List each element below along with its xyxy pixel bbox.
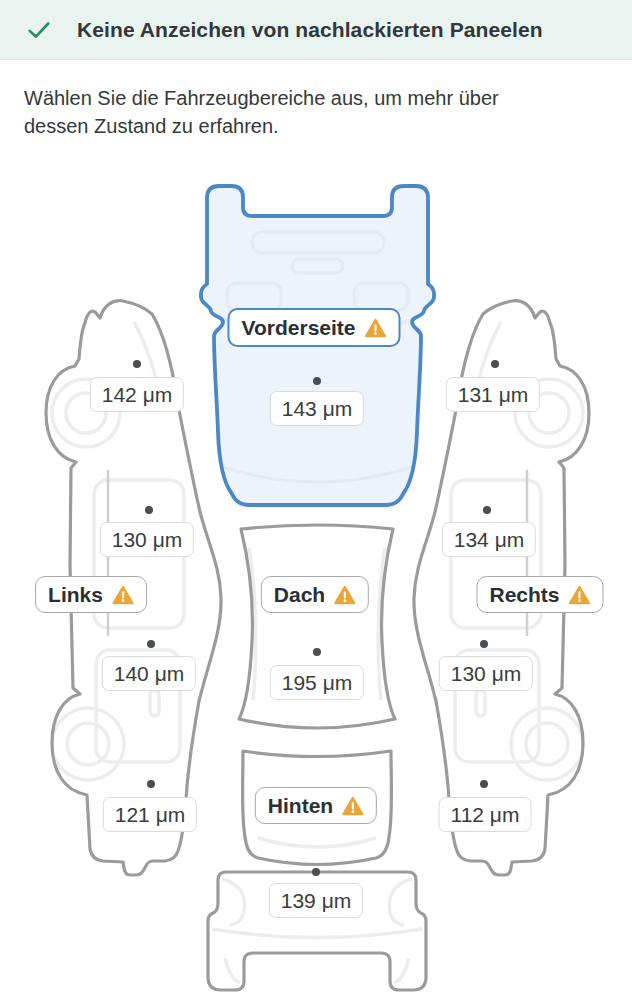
measurement-chip-front: 143 μm — [270, 391, 364, 426]
measurement-chip-right-3: 130 μm — [439, 656, 533, 691]
measurement-value: 121 μm — [115, 803, 185, 826]
measurement-value: 140 μm — [114, 662, 184, 685]
measure-dot-front — [313, 377, 321, 385]
measurement-value: 142 μm — [102, 383, 172, 406]
measure-dot-right-2 — [483, 506, 491, 514]
vehicle-diagram: 143 μm 142 μm 130 μm 140 μm 121 μm 131 μ… — [0, 0, 632, 1000]
measure-dot-left-2 — [145, 506, 153, 514]
section-label-roof[interactable]: Dach — [261, 576, 369, 613]
section-label-text: Vorderseite — [242, 314, 356, 341]
section-label-text: Dach — [274, 581, 325, 608]
measurement-chip-left-2: 130 μm — [100, 522, 194, 557]
measure-dot-right-4 — [480, 780, 488, 788]
measurement-value: 131 μm — [458, 383, 528, 406]
measure-dot-roof — [313, 648, 321, 656]
measurement-chip-right-1: 131 μm — [446, 377, 540, 412]
measurement-value: 130 μm — [112, 528, 182, 551]
measurement-value: 139 μm — [281, 889, 351, 912]
section-label-front[interactable]: Vorderseite — [228, 308, 401, 347]
car-outline-svg — [0, 0, 632, 1000]
measurement-chip-right-4: 112 μm — [439, 797, 532, 832]
measure-dot-left-3 — [147, 640, 155, 648]
warning-triangle-icon — [112, 585, 134, 605]
measurement-value: 143 μm — [282, 397, 352, 420]
section-label-right[interactable]: Rechts — [476, 576, 603, 613]
measurement-chip-right-2: 134 μm — [442, 522, 536, 557]
measurement-chip-left-3: 140 μm — [102, 656, 196, 691]
section-label-left[interactable]: Links — [35, 576, 147, 613]
measurement-value: 130 μm — [451, 662, 521, 685]
measurement-chip-left-4: 121 μm — [103, 797, 197, 832]
section-label-text: Links — [48, 581, 103, 608]
measure-dot-left-4 — [147, 780, 155, 788]
section-label-text: Hinten — [268, 792, 333, 819]
measurement-value: 195 μm — [282, 671, 352, 694]
section-label-rear[interactable]: Hinten — [255, 787, 377, 824]
warning-triangle-icon — [334, 585, 356, 605]
measurement-value: 112 μm — [451, 803, 520, 826]
measure-dot-right-1 — [491, 360, 499, 368]
warning-triangle-icon — [365, 318, 387, 338]
measure-dot-right-3 — [480, 640, 488, 648]
measurement-chip-left-1: 142 μm — [90, 377, 184, 412]
warning-triangle-icon — [569, 585, 591, 605]
section-label-text: Rechts — [489, 581, 559, 608]
measurement-value: 134 μm — [454, 528, 524, 551]
measurement-chip-roof: 195 μm — [270, 665, 364, 700]
measurement-chip-rear: 139 μm — [269, 883, 363, 918]
warning-triangle-icon — [342, 796, 364, 816]
measure-dot-rear — [312, 868, 320, 876]
measure-dot-left-1 — [133, 360, 141, 368]
paint-inspection-page: Keine Anzeichen von nachlackierten Panee… — [0, 0, 632, 1000]
